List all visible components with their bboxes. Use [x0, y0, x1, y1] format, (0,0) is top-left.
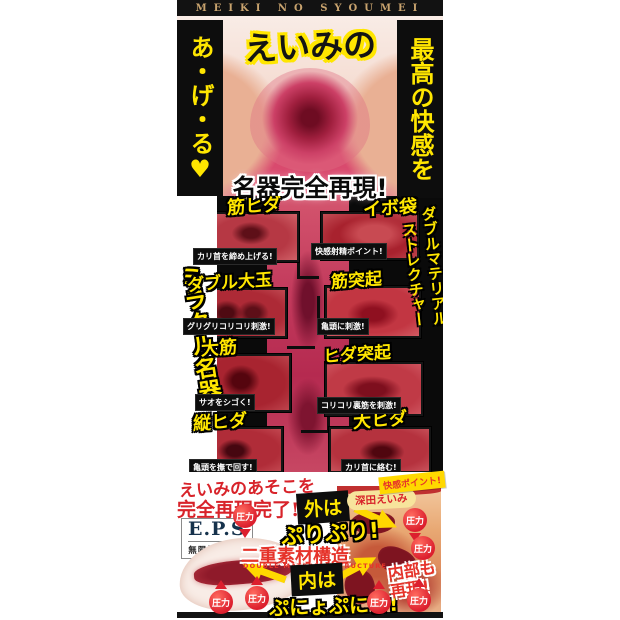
- pressure-indicator: 圧力: [407, 578, 431, 612]
- feature-panel: ミラクル名器 ダブルマテリアル ストレクチャー 筋ヒダ カリ首を締め上げる! イ…: [177, 196, 443, 472]
- top-banner-text: MEIKI NO SYOUMEI: [196, 3, 425, 14]
- hero-photo-center: [250, 68, 370, 172]
- feature-label: ヒダ突起: [323, 338, 391, 368]
- pressure-badge: 圧力: [403, 508, 427, 532]
- feature-caption: サオをシゴく!: [195, 394, 255, 411]
- bottom-section: えいみのあそこを 完全再現完了! E.P.S 無限快感構造 外は ぷりぷり! 二…: [177, 472, 443, 612]
- feature-caption: カリ首に絡む!: [341, 459, 401, 472]
- pressure-arrow-up-icon: [373, 580, 385, 589]
- feature-label: 筋突起: [331, 264, 382, 293]
- feature-caption: 快感射精ポイント!: [311, 243, 387, 260]
- pressure-arrow-up-icon: [413, 578, 425, 587]
- feature-label: イボ袋: [363, 196, 417, 222]
- pressure-indicator: 圧力: [245, 576, 269, 610]
- pressure-indicator: 圧力: [411, 536, 435, 560]
- product-package: MEIKI NO SYOUMEI えいみの あ・げ・る♥ 最高の快感を 名器完全…: [177, 0, 443, 618]
- right-tagline-text: 最高の快感を: [408, 37, 432, 181]
- feature-caption: グリグリコリコリ刺激!: [183, 318, 275, 335]
- feature-caption: カリ首を締め上げる!: [193, 248, 277, 265]
- top-banner: MEIKI NO SYOUMEI: [177, 0, 443, 16]
- callout-line: [287, 346, 315, 349]
- pressure-arrow-down-icon: [239, 529, 251, 538]
- callout-line: [301, 430, 329, 433]
- pressure-indicator: 圧力: [209, 580, 233, 614]
- feature-caption: 亀頭に刺激!: [317, 318, 369, 335]
- feature-caption: 亀頭を撫で回す!: [189, 459, 257, 472]
- pressure-indicator: 圧力: [233, 504, 257, 538]
- callout-line: [297, 276, 319, 279]
- feature-label: 筋ヒダ: [227, 196, 281, 220]
- pressure-badge: 圧力: [407, 588, 431, 612]
- feature-caption: コリコリ裏筋を刺激!: [317, 397, 401, 414]
- feature-label: 大筋: [201, 333, 237, 362]
- pressure-arrow-up-icon: [215, 580, 227, 589]
- pressure-badge: 圧力: [245, 586, 269, 610]
- pressure-badge: 圧力: [209, 590, 233, 614]
- pressure-arrow-up-icon: [251, 576, 263, 585]
- left-tagline-text: あ・げ・る♥: [188, 35, 212, 183]
- pressure-badge: 圧力: [411, 536, 435, 560]
- pressure-indicator: 圧力: [367, 580, 391, 614]
- pressure-badge: 圧力: [367, 590, 391, 614]
- pressure-badge: 圧力: [233, 504, 257, 528]
- package-shot: MEIKI NO SYOUMEI えいみの あ・げ・る♥ 最高の快感を 名器完全…: [0, 0, 620, 620]
